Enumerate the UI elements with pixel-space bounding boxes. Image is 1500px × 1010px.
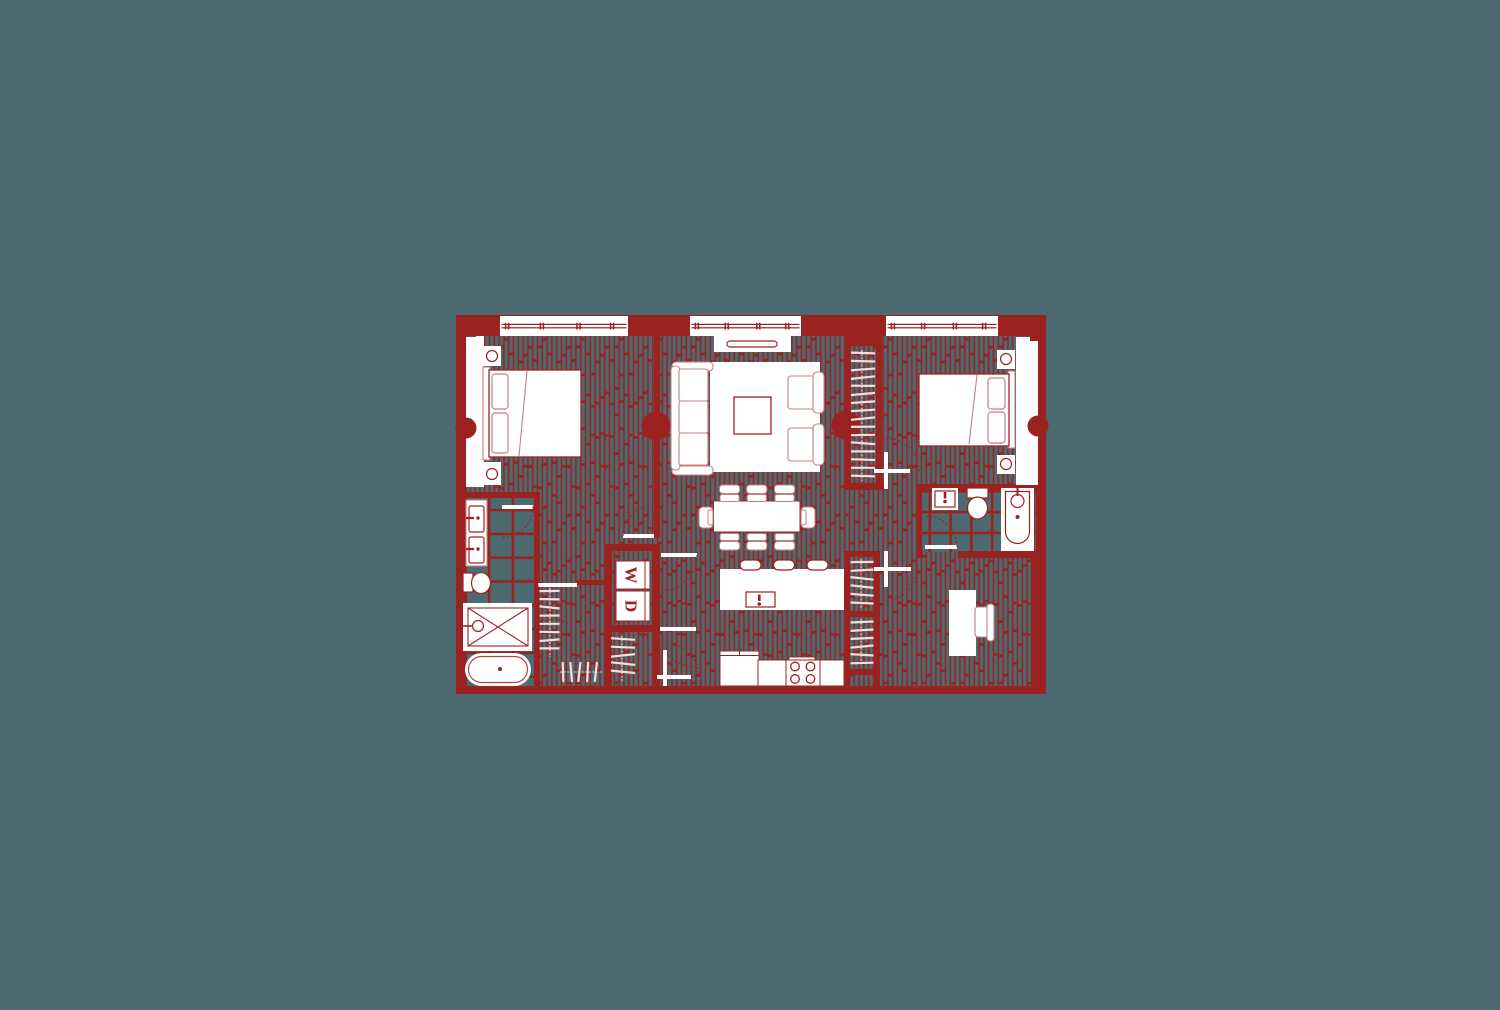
svg-text:D: D (622, 600, 641, 612)
svg-text:W: W (622, 567, 641, 584)
